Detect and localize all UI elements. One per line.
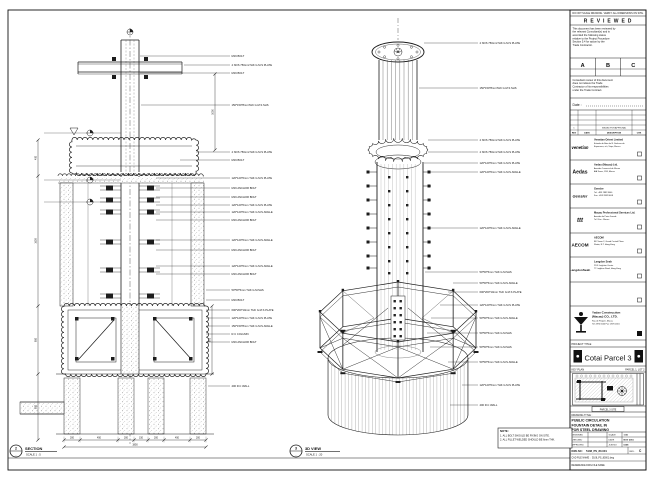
section-callout: 120*120*6mm THK G.M.S ANGLE	[232, 210, 273, 214]
dwg-no-value: 5108_PS_80-001	[586, 449, 607, 453]
dim-label: 1050	[211, 109, 214, 115]
consultant-address-line: 77 Leighton Road, Hong Kong	[594, 267, 621, 270]
field-value: 1:50	[624, 435, 629, 437]
3d-bubble-number: 3	[295, 447, 297, 451]
3d-callout: 150*150*8mmTHK G.M.S SHS	[480, 86, 517, 90]
consultant-name: Gensler	[594, 187, 604, 191]
consultant-address-line: Tel: +853 2882 8000	[594, 192, 613, 194]
section-callout: M16 ANCHOR BOLT	[232, 340, 257, 344]
3d-callout: 120*120*6mm THK G.M.S ANGLE	[480, 226, 521, 230]
3d-view-title: 3D VIEW	[305, 446, 321, 451]
3d-callout: 50*50*5mm THK G.M.SHS	[480, 270, 512, 274]
field-value: NOV 2015	[624, 440, 635, 442]
consultant-address-line: Tel / Fax : Macau	[594, 219, 609, 221]
dim-label: 800	[34, 404, 37, 409]
3d-callout: 50*50*5mm THK G.M.S ANGLE	[480, 281, 518, 285]
drawing-title-line: FOUNTAIN DETAIL IN	[572, 423, 608, 427]
consultant-logo: ttt	[577, 218, 584, 224]
section-callout: M16 ANCHOR BOLT	[232, 186, 257, 190]
revision-cell: ISSUED FOR APPROVAL	[602, 127, 627, 130]
field-value: 5108	[624, 445, 630, 447]
rev-value: C	[639, 449, 642, 453]
section-callout: M16 ANCHOR BOLT	[232, 218, 257, 222]
section-bubble-number: 2	[15, 447, 17, 451]
dim-label: 850	[34, 337, 37, 342]
consultant-name: AECOM	[594, 236, 604, 240]
field-label: CHECKED	[572, 440, 583, 442]
section-callout: M16 BOLT	[232, 71, 245, 75]
dim-label: 400	[34, 155, 37, 160]
section-view-label: 2 - SECTION SCALE 1 : 5	[10, 445, 57, 457]
section-callout: 150*150*8mm THK G.M.S ANGLE	[232, 324, 273, 328]
section-callout: 50*50*5mm THK G.M.SHS	[232, 288, 264, 292]
3d-view-scale: SCALE 1 : 20	[306, 453, 323, 457]
key-plan-marker-label: PARCEL 3 SITE	[600, 408, 617, 411]
section-callout: 400 R.C WALL	[232, 384, 250, 388]
header-note: DO NOT SCALE DRAWING. VERIFY ALL DIMENSI…	[572, 12, 644, 15]
dim-label: 200	[154, 437, 159, 440]
note-item: 1. ALL BOLT SHOULD BE FIXING ON SITE.	[500, 435, 550, 438]
consultant-logo: Aedas	[572, 170, 587, 176]
key-plan-right-label: PARCEL 1, LOT 2	[625, 368, 645, 371]
section-callout: R.C COLUMN	[232, 332, 249, 336]
project-name: Cotai Parcel 3	[584, 354, 631, 363]
dim-label: 450	[175, 437, 180, 440]
notes-box: NOTE: 1. ALL BOLT SHOULD BE FIXING ON SI…	[498, 428, 572, 448]
dim-label: 150	[139, 437, 144, 440]
project-title-label: PROJECT TITLE	[572, 342, 592, 346]
dim-label: 1600	[34, 238, 37, 244]
consultant-address-line: Estrada da Baia de N. Senhora da	[594, 142, 625, 145]
ref-label: REFERENCE DWG FILE NAME	[572, 464, 606, 467]
section-callout: M16 ANCHOR BOLT	[232, 272, 257, 276]
consultant-address-line: Esperanca, s/n, Taipa, Macau	[594, 146, 620, 148]
contractor-name: (Macau) CO., LTD.	[592, 314, 618, 318]
section-view-scale: SCALE 1 : 5	[26, 453, 41, 457]
3d-callout: 50*50*5mm THK G.M.SHS	[480, 345, 512, 349]
consultant-address-line: 8/F Tower 2, Grand Central Plaza	[594, 240, 625, 243]
dim-total-label: 1850	[132, 444, 138, 447]
dim-label: 450	[97, 437, 102, 440]
consultant-logo: Gensler	[573, 194, 588, 199]
date-label: Date :	[573, 103, 582, 107]
consultant-logo: AECOM	[571, 243, 588, 248]
notes-title: NOTE:	[500, 429, 509, 433]
revision-cell: DESCRIPTION	[607, 133, 622, 135]
dwg-no-label: DWG NO :	[572, 450, 584, 453]
section-callout: 4 NOS 750mmTHK G.M.S PLATE	[232, 63, 273, 67]
status-c: C	[631, 63, 635, 69]
section-callout: 600*200*10mm THK G.M.S PLATE	[232, 308, 274, 312]
3d-callout: 4 NOS 750mmTHK G.M.S PLATE	[480, 150, 521, 154]
section-view: 1050800200450200150200450200185040016008…	[20, 28, 274, 449]
dim-label: 200	[124, 437, 129, 440]
section-callout: 120*120*6mm THK G.M.S ANGLE	[232, 238, 273, 242]
field-label: JOB NO	[609, 445, 617, 447]
section-callout: M16 ANCHOR BOLT	[232, 248, 257, 252]
field-label: DESIGNED	[572, 435, 584, 437]
revision-cell: CHK	[637, 133, 642, 135]
revision-cell: 1	[573, 128, 575, 130]
consultant-address-line: Avenida Comercial de Macau	[594, 167, 620, 170]
section-bubble-ref: -	[16, 453, 17, 457]
section-callout: M16 ANCHOR BOLT	[232, 195, 257, 199]
revision-cell: DATE	[584, 132, 590, 135]
consultant-address-line: Avenida da Praia Grande	[594, 215, 617, 218]
consultant-address-line: AIA Tower, 19/F, Macau	[594, 170, 615, 173]
field-label: SCALE	[609, 434, 617, 437]
reviewed-note-line: under the Trade Contract.	[573, 88, 603, 92]
3d-callout: 120*120*6mm THK G.M.S PLATE	[480, 161, 521, 165]
consultant-name: Langdon Seah	[594, 260, 612, 264]
3d-callout: 120*120*6mm THK G.M.S ANGLE	[480, 170, 521, 174]
drawing-title-line: PUBLIC CIRCULATION	[572, 419, 610, 423]
drawing-title-label: DRAWING TITLE :	[572, 414, 593, 417]
revision-cell: REV	[572, 133, 577, 135]
consultant-logo: venetian	[572, 145, 589, 150]
section-view-title: SECTION	[25, 446, 42, 451]
section-callout: 150*150*8mmTHK G.M.S SHS	[232, 103, 269, 107]
3d-callout: 50*50*5mm THK G.M.S ANGLE	[480, 360, 518, 364]
3d-view-label: 3 - 3D VIEW SCALE 1 : 20	[290, 445, 340, 457]
3d-callout: 4 NOS 750mmTHK G.M.S PLATE	[480, 41, 521, 45]
section-callout: 120*120*6mm THK G.M.S PLATE	[232, 316, 273, 320]
reviewed-title: R E V I E W E D	[584, 19, 632, 25]
consultant-address-line: Fax: +853 2882 8008	[594, 195, 614, 197]
rev-label: REV :	[630, 451, 636, 453]
3d-callout: 120*120*6mm THK G.M.S PLATE	[480, 383, 521, 387]
drawing-title-line: FOR STEEL DRAWING	[572, 428, 610, 432]
contractor-address-line: Tel: 2870 0000 Fax: 2870 0001	[592, 323, 620, 325]
note-item: 2. ALL FILLET WELDED SHOULD BE 6mm THK.	[500, 439, 555, 442]
consultant-name: Aedas (Macau) Ltd.	[594, 163, 618, 167]
title-block: This document has been reviewed bythe re…	[570, 10, 646, 470]
consultant-name: Venetian Orient Limited	[594, 138, 623, 142]
section-callout: 4 NOS 750mmTHK G.M.S PLATE	[232, 150, 273, 154]
contractor-address-line: Rua de Pequim, Macau	[592, 321, 613, 323]
consultant-name: Macau Professional Services Ltd.	[594, 211, 636, 215]
reviewed-body-line: Trade Contractor.	[573, 43, 593, 47]
section-callout: 120*120*6mm THK G.M.S ANGLE	[232, 264, 273, 268]
3d-view: 4 NOS 750mmTHK G.M.S PLATE150*150*8mmTHK…	[318, 18, 522, 435]
3d-callout: 600*200*10mm THK G.M.S PLATE	[480, 290, 522, 294]
file-value: 5108_PS_80001.dwg	[592, 458, 615, 460]
3d-callout: 50*50*5mm THK G.M.S ANGLE	[480, 316, 518, 320]
file-label: CAD FILE NAME :	[572, 457, 591, 460]
key-plan-label: KEY PLAN	[572, 367, 585, 371]
consultant-address-line: 2101 Leighton Centre	[594, 264, 614, 267]
field-label: APPROVED	[572, 444, 585, 447]
section-callout: M16 BOLT	[232, 298, 245, 302]
section-callout: 120*120*6mm THK G.M.S PLATE	[232, 203, 273, 207]
consultant-address-line: Shatin, N.T. Hong Kong	[594, 243, 615, 246]
drawing-sheet: 1050800200450200150200450200185040016008…	[0, 0, 650, 488]
section-callout: M16 BOLT	[232, 158, 245, 162]
3d-callout: 120*120*6mm THK G.M.S PLATE	[480, 303, 521, 307]
consultant-logo: LangdonSeah	[570, 268, 591, 272]
dim-label: 200	[196, 437, 201, 440]
field-label: DATE	[609, 439, 615, 442]
section-callout: M16 BOLT	[232, 54, 245, 58]
3d-bubble-ref: -	[296, 453, 297, 457]
section-callout: 120*120*6mm THK G.M.S PLATE	[232, 176, 273, 180]
status-b: B	[606, 63, 610, 69]
status-a: A	[581, 63, 585, 69]
dim-label: 200	[70, 437, 75, 440]
3d-callout: 400 R.C WALL	[480, 403, 498, 407]
3d-callout: 4 NOS 750mmTHK G.M.S PLATE	[480, 138, 521, 142]
3d-callout: 50*50*5mm THK G.M.SHS	[480, 331, 512, 335]
